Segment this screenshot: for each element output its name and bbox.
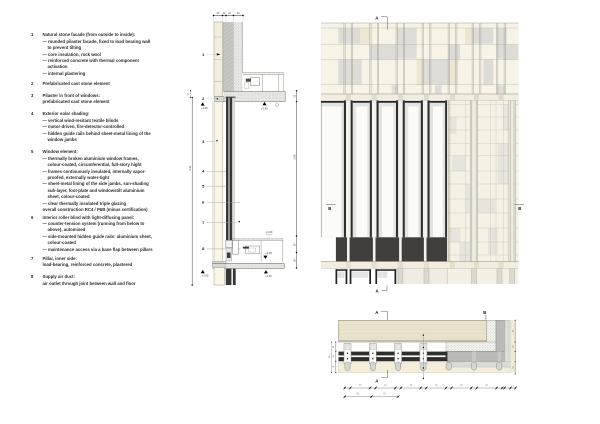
svg-text:B: B xyxy=(483,310,486,315)
svg-text:B: B xyxy=(518,206,521,211)
svg-text:+1.00: +1.00 xyxy=(201,106,208,110)
svg-text:7: 7 xyxy=(202,220,205,225)
svg-text:3.41: 3.41 xyxy=(188,165,192,171)
svg-text:+1.40: +1.40 xyxy=(261,106,268,110)
svg-text:32: 32 xyxy=(293,94,296,97)
svg-text:35: 35 xyxy=(188,92,190,95)
svg-text:10: 10 xyxy=(435,384,438,387)
svg-text:3: 3 xyxy=(202,139,205,144)
svg-text:26: 26 xyxy=(217,12,220,15)
svg-text:35: 35 xyxy=(293,243,296,246)
svg-text:5: 5 xyxy=(202,184,205,189)
svg-text:26: 26 xyxy=(333,355,335,358)
svg-text:B: B xyxy=(328,206,331,211)
svg-text:+1.90: +1.90 xyxy=(202,274,209,278)
svg-text:81: 81 xyxy=(357,392,360,395)
svg-text:12: 12 xyxy=(223,12,226,15)
svg-text:10: 10 xyxy=(359,384,362,387)
svg-text:4: 4 xyxy=(202,169,205,174)
svg-text:10: 10 xyxy=(409,384,412,387)
svg-text:+0.00: +0.00 xyxy=(265,251,272,255)
svg-text:32: 32 xyxy=(237,12,240,15)
svg-text:6: 6 xyxy=(202,200,205,205)
svg-text:81: 81 xyxy=(383,392,386,395)
svg-text:2: 2 xyxy=(202,96,205,101)
svg-text:10: 10 xyxy=(460,384,463,387)
svg-text:26: 26 xyxy=(293,259,296,262)
svg-text:10: 10 xyxy=(485,384,488,387)
svg-text:+1.00: +1.00 xyxy=(265,274,272,278)
svg-text:50: 50 xyxy=(329,355,331,358)
svg-text:8: 8 xyxy=(202,246,205,251)
svg-text:A: A xyxy=(376,289,380,294)
svg-text:12: 12 xyxy=(333,365,335,368)
svg-text:A: A xyxy=(375,379,379,384)
svg-text:+1.00: +1.00 xyxy=(266,230,273,234)
svg-text:21: 21 xyxy=(228,12,231,15)
svg-text:2.66: 2.66 xyxy=(292,154,296,160)
svg-text:10: 10 xyxy=(384,384,387,387)
svg-text:12: 12 xyxy=(333,345,335,348)
svg-text:1: 1 xyxy=(202,52,205,57)
svg-text:A: A xyxy=(375,16,379,21)
svg-text:A: A xyxy=(375,310,379,315)
